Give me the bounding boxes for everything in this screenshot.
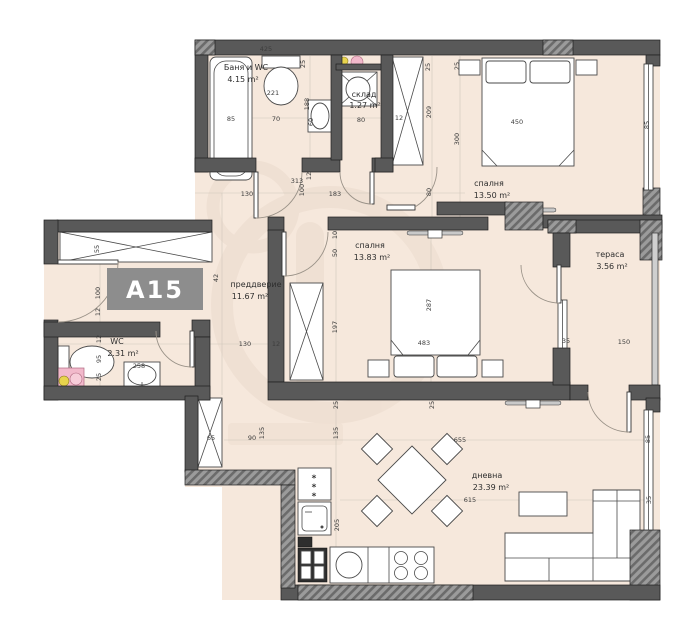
dim-label: 425 bbox=[260, 45, 272, 53]
dim-label: 135 bbox=[332, 427, 340, 439]
dim-label: 12 bbox=[395, 114, 403, 122]
dim-label: 42 bbox=[212, 274, 220, 282]
dim-label: 35 bbox=[645, 496, 653, 504]
dim-label: 90 bbox=[248, 434, 256, 442]
room-bedroom1-label: спалня bbox=[474, 179, 504, 188]
hall-closet-top bbox=[60, 232, 212, 262]
dim-label: 60 bbox=[307, 118, 315, 126]
window-living bbox=[644, 410, 653, 530]
dim-label: 100 bbox=[94, 287, 102, 299]
dim-label: 85 bbox=[643, 121, 651, 129]
dim-label: 130 bbox=[241, 190, 253, 198]
dim-label: 483 bbox=[418, 339, 430, 347]
washbasin-bath-icon bbox=[308, 100, 333, 132]
room-living-label: дневна bbox=[472, 471, 503, 480]
dim-label: 655 bbox=[454, 436, 466, 444]
svg-text:*: * bbox=[312, 492, 317, 502]
dim-label: 205 bbox=[333, 519, 341, 531]
room-wc-area: 2.31 m² bbox=[107, 349, 138, 358]
dim-label: 150 bbox=[618, 338, 630, 346]
fridge-icon: * * * bbox=[298, 468, 331, 502]
dim-label: 25 bbox=[332, 401, 340, 409]
room-terrace-label: тераса bbox=[596, 250, 625, 259]
dim-label: 221 bbox=[267, 89, 279, 97]
dim-label: 100 bbox=[298, 184, 306, 196]
oven-unit-icon bbox=[298, 548, 327, 582]
dim-label: 287 bbox=[425, 299, 433, 311]
room-living-area: 23.39 m² bbox=[473, 483, 509, 492]
dim-label: 25 bbox=[424, 63, 432, 71]
dim-label: 80 bbox=[425, 188, 433, 196]
dim-label: 130 bbox=[239, 340, 251, 348]
dim-label: 55 bbox=[93, 245, 101, 253]
dim-label: 65 bbox=[207, 434, 215, 442]
dim-label: 95 bbox=[95, 355, 103, 363]
room-bedroom1-area: 13.50 m² bbox=[474, 191, 510, 200]
dim-label: 209 bbox=[425, 106, 433, 118]
room-hall-label: преддверие bbox=[230, 280, 281, 289]
dim-label: 80 bbox=[357, 116, 365, 124]
dim-label: 188 bbox=[303, 98, 311, 110]
dim-label: 12 bbox=[94, 308, 102, 316]
kitchen-corner-unit bbox=[298, 537, 312, 547]
dim-label: 50 bbox=[331, 249, 339, 257]
dim-label: 25 bbox=[95, 373, 103, 381]
wardrobe-bedroom2 bbox=[290, 283, 323, 380]
room-terrace-area: 3.56 m² bbox=[596, 262, 627, 271]
room-bath-label: Баня и WC bbox=[224, 63, 269, 72]
room-wc-label: WC bbox=[110, 337, 124, 346]
dim-label: 197 bbox=[331, 321, 339, 333]
dim-label: 25 bbox=[299, 60, 307, 68]
dim-label: 35 bbox=[562, 337, 570, 345]
hall-closet-bottom bbox=[198, 398, 222, 467]
dim-label: 615 bbox=[464, 496, 476, 504]
dim-label: 12 bbox=[95, 335, 103, 343]
unit-badge: A15 bbox=[107, 268, 203, 310]
dim-label: 25 bbox=[428, 401, 436, 409]
floor-plan: * * * bbox=[0, 0, 687, 624]
dim-label: 12 bbox=[305, 172, 313, 180]
room-storage-label: склад bbox=[352, 90, 377, 99]
dim-label: 450 bbox=[511, 118, 523, 126]
dim-label: 25 bbox=[453, 62, 461, 70]
room-bath-area: 4.15 m² bbox=[227, 75, 258, 84]
round-sink-icon bbox=[336, 552, 362, 578]
kitchen-counter bbox=[330, 547, 434, 583]
dim-label: 12 bbox=[272, 340, 280, 348]
wardrobe-bedroom1 bbox=[392, 57, 423, 165]
dim-label: 10 bbox=[331, 231, 339, 239]
unit-badge-label: A15 bbox=[126, 276, 184, 304]
dim-label: 258 bbox=[133, 362, 145, 370]
room-bedroom2-label: спалня bbox=[355, 241, 385, 250]
kitchen-sink-icon bbox=[298, 502, 331, 535]
coffee-table bbox=[519, 492, 567, 516]
floor-plan-page: * * * bbox=[0, 0, 687, 624]
dim-label: 135 bbox=[258, 427, 266, 439]
dim-label: 183 bbox=[329, 190, 341, 198]
dim-label: 85 bbox=[644, 435, 652, 443]
dim-label: 70 bbox=[272, 115, 280, 123]
room-bedroom2-area: 13.83 m² bbox=[354, 253, 390, 262]
dim-label: 85 bbox=[227, 115, 235, 123]
room-storage-area: 1.27 m² bbox=[349, 101, 380, 110]
room-hall-area: 11.67 m² bbox=[232, 292, 268, 301]
dim-label: 300 bbox=[453, 133, 461, 145]
